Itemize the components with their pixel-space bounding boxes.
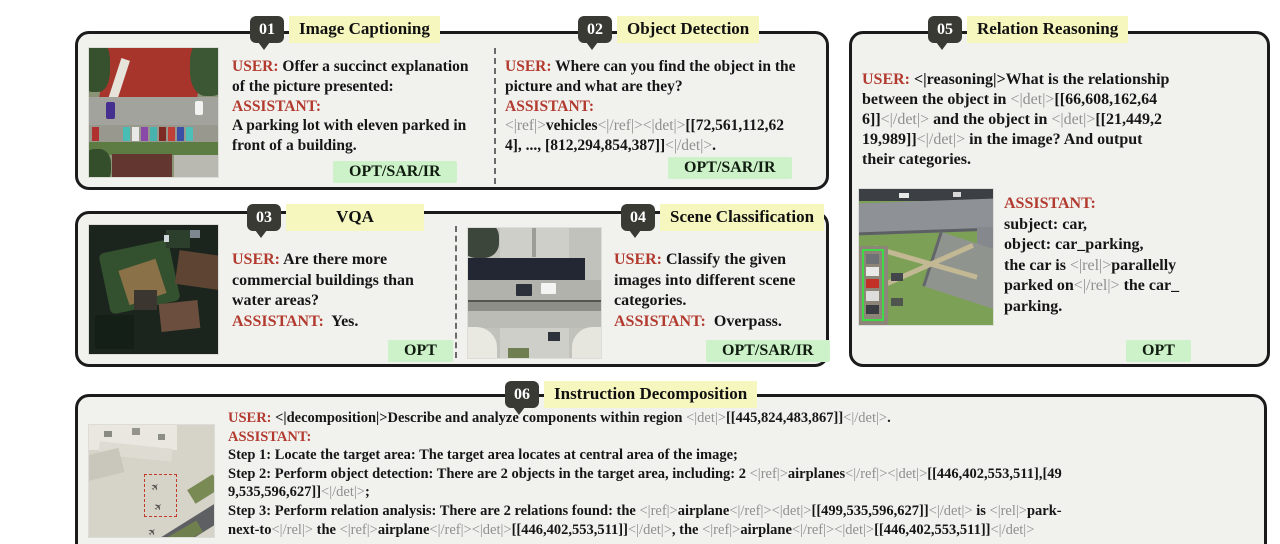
aerial-image-airport: ✈ ✈ ✈ bbox=[88, 424, 215, 538]
modality-tag: OPT/SAR/IR bbox=[706, 340, 830, 362]
task-number-badge: 06 bbox=[505, 381, 539, 408]
task-title: Relation Reasoning bbox=[967, 16, 1128, 43]
task-title: VQA bbox=[286, 204, 424, 231]
task-title: Object Detection bbox=[617, 16, 759, 43]
header-object-detection: 02 Object Detection bbox=[578, 16, 759, 43]
aerial-image-farmland bbox=[88, 224, 219, 355]
task-examples-figure: 01 Image Captioning 02 Object Detection … bbox=[0, 0, 1280, 544]
airplane-icon: ✈ bbox=[147, 527, 160, 538]
modality-tag: OPT/SAR/IR bbox=[333, 161, 457, 183]
modality-tag: OPT bbox=[1126, 340, 1191, 362]
task-title: Scene Classification bbox=[660, 204, 824, 231]
task-title: Image Captioning bbox=[289, 16, 440, 43]
task-number-badge: 01 bbox=[250, 16, 284, 43]
task-number-badge: 02 bbox=[578, 16, 612, 43]
modality-tag: OPT bbox=[388, 340, 453, 362]
dialogue-instruction-decomposition: USER: <|decomposition|>Describe and anal… bbox=[228, 409, 1263, 539]
header-relation-reasoning: 05 Relation Reasoning bbox=[928, 16, 1128, 43]
dialogue-vqa: USER: Are there morecommercial buildings… bbox=[232, 250, 452, 332]
header-vqa: 03 VQA bbox=[247, 204, 424, 231]
dialogue-relation-reasoning-user: USER: <|reasoning|>What is the relations… bbox=[862, 70, 1267, 170]
dialogue-object-detection: USER: Where can you find the object in t… bbox=[505, 57, 835, 156]
divider-vqa-scene bbox=[455, 226, 457, 358]
header-image-captioning: 01 Image Captioning bbox=[250, 16, 440, 43]
task-number-badge: 05 bbox=[928, 16, 962, 43]
aerial-image-overpass bbox=[467, 227, 602, 359]
dialogue-relation-reasoning-assistant: ASSISTANT:subject: car,object: car_parki… bbox=[1004, 194, 1269, 317]
dialogue-image-captioning: USER: Offer a succinct explanationof the… bbox=[232, 57, 494, 156]
dialogue-scene-classification: USER: Classify the givenimages into diff… bbox=[614, 250, 834, 332]
task-number-badge: 03 bbox=[247, 204, 281, 231]
header-instruction-decomposition: 06 Instruction Decomposition bbox=[505, 381, 757, 408]
divider-captioning-detection bbox=[494, 48, 496, 184]
header-scene-classification: 04 Scene Classification bbox=[621, 204, 824, 231]
task-number-badge: 04 bbox=[621, 204, 655, 231]
aerial-image-parking-lot bbox=[88, 47, 219, 178]
modality-tag: OPT/SAR/IR bbox=[668, 157, 792, 179]
task-title: Instruction Decomposition bbox=[544, 381, 757, 408]
aerial-image-car-parking bbox=[858, 188, 994, 326]
